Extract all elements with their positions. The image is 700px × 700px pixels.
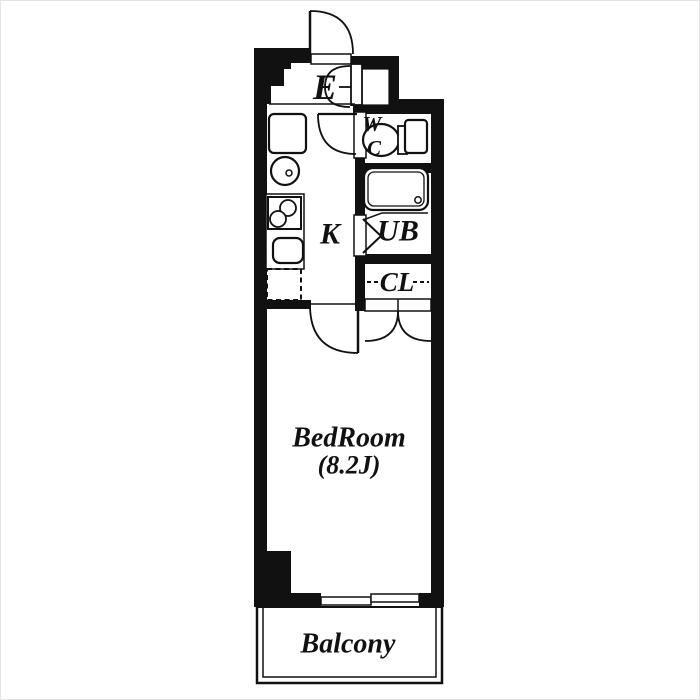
pipe-space-box [361,69,389,105]
closet-door-arc-left [365,311,398,341]
room-label-bath: UB [377,215,419,248]
washer-pan-icon [269,114,306,153]
room-label-bedroom-size: (8.2J) [318,451,381,480]
room-label-toilet-c: C [367,136,382,160]
room-label-closet: CL [380,267,415,297]
room-label-bedroom: BedRoom [291,423,406,454]
floorplan-drawing: E W C K UB CL BedRoom (8.2J) Balcony [1,1,700,700]
refrigerator-dashed-box [267,269,301,300]
wall-right [431,99,444,607]
window-sliding-panel-right [371,594,419,602]
bedroom-door-arc [310,305,358,353]
bathtub-drain-icon [415,197,421,203]
wc-door-arc [318,114,356,154]
entrance-threshold [311,54,351,64]
floorplan-canvas: E W C K UB CL BedRoom (8.2J) Balcony [0,0,700,700]
washer-drum-icon [271,157,299,185]
room-label-entrance: E [312,67,337,107]
entrance-door-arc [310,11,353,54]
kitchen-fixtures [266,114,306,300]
stove-burner-icon [270,211,286,227]
room-label-toilet-w: W [363,112,383,136]
closet-door-arc-right [398,311,431,341]
room-label-kitchen: K [319,218,342,251]
bathtub-icon [363,168,428,220]
washer-drain-icon [286,170,292,176]
window-sliding-panel-left [321,597,371,605]
room-label-balcony: Balcony [300,629,396,660]
shoe-cabinet-band [351,64,362,105]
wall-ub-cl-divider [355,254,444,264]
sink-icon [273,238,303,263]
wall-kitchen-bedroom [254,300,311,309]
wall-bottom-left [254,593,321,607]
toilet-tank-icon [405,120,427,153]
